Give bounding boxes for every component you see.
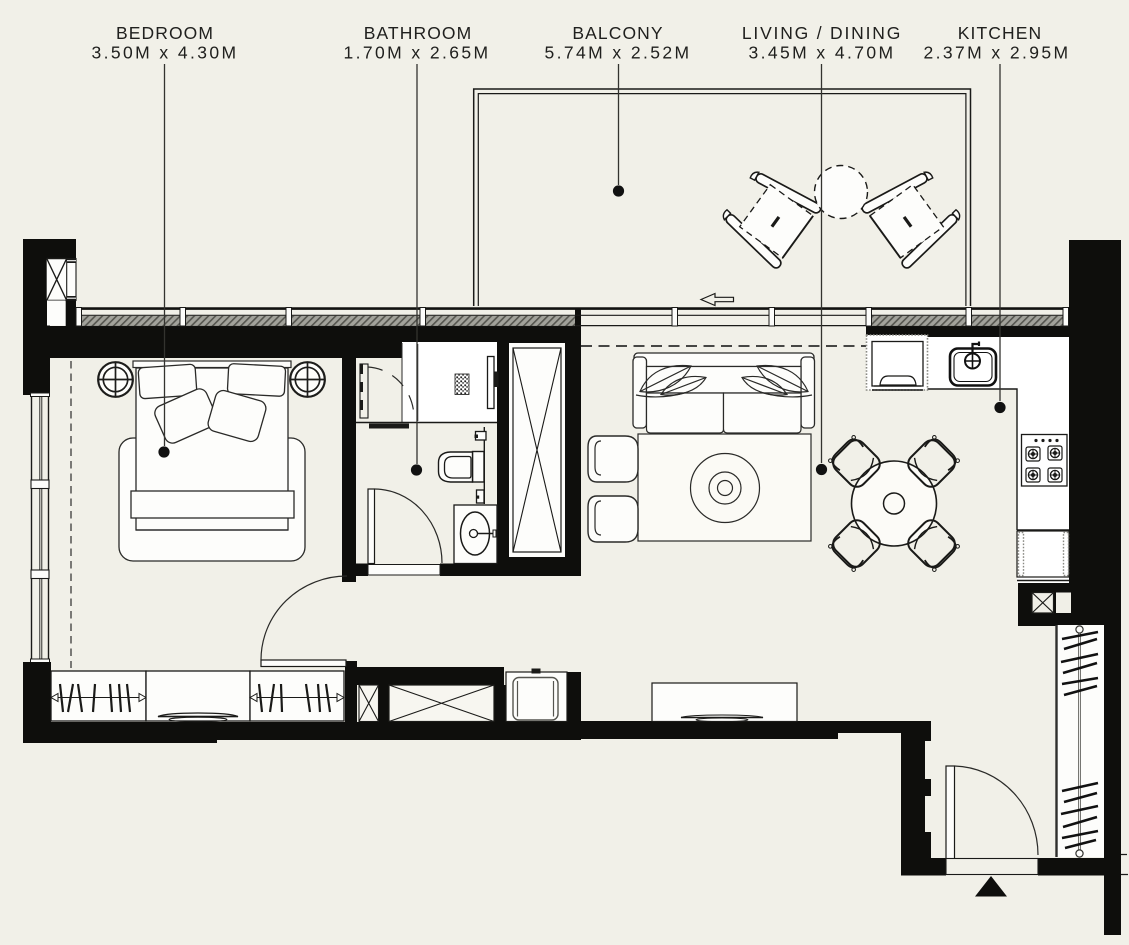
svg-text:BALCONY: BALCONY [572, 23, 663, 43]
svg-text:3.50M x 4.30M: 3.50M x 4.30M [92, 43, 239, 63]
svg-text:KITCHEN: KITCHEN [958, 23, 1043, 43]
svg-text:2.37M x 2.95M: 2.37M x 2.95M [924, 43, 1071, 63]
svg-text:3.45M x 4.70M: 3.45M x 4.70M [749, 43, 896, 63]
svg-text:LIVING / DINING: LIVING / DINING [742, 23, 902, 43]
svg-text:BEDROOM: BEDROOM [116, 23, 214, 43]
svg-text:1.70M x 2.65M: 1.70M x 2.65M [344, 43, 491, 63]
svg-text:BATHROOM: BATHROOM [364, 23, 473, 43]
svg-text:5.74M x 2.52M: 5.74M x 2.52M [545, 43, 692, 63]
